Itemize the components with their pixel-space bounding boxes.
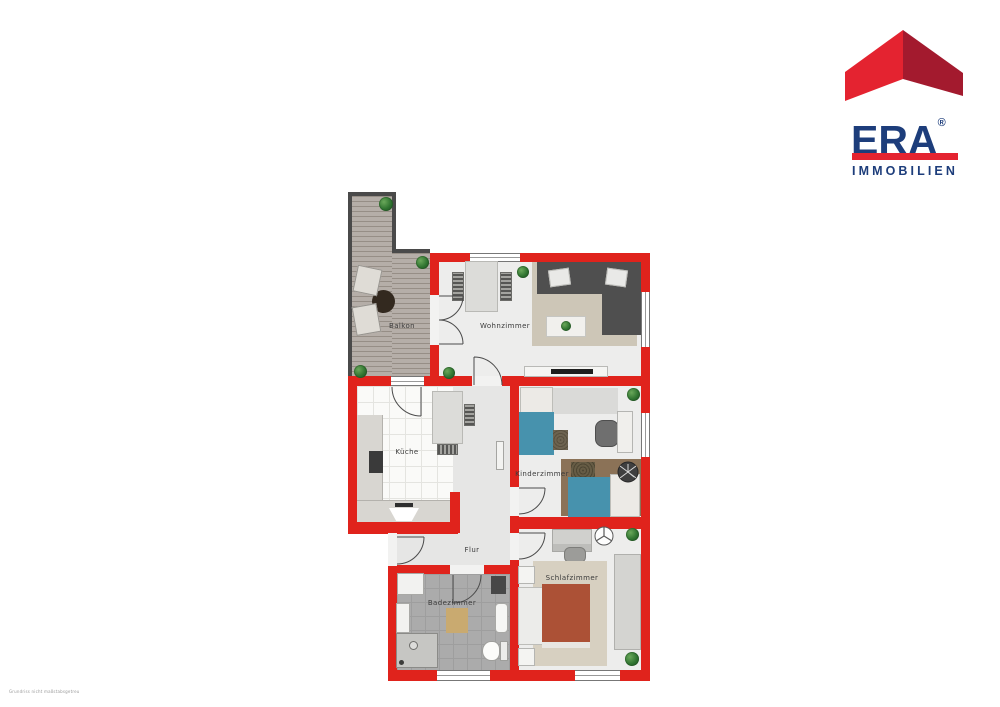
window-bedroom-bottom [575,670,620,681]
room-label-wohnzimmer: Wohnzimmer [480,322,530,330]
room-label-balkon: Balkon [389,322,415,330]
window-kidsroom-right [641,413,650,457]
plant-icon [354,365,367,378]
room-label-schlafzimmer: Schlafzimmer [546,574,599,582]
dining-table [465,261,498,312]
door-opening-entry [388,533,397,566]
window-livingroom-right [641,292,650,347]
era-logo: ERA® IMMOBILIEN [845,30,963,180]
wall [430,253,439,295]
balcony-deck-lower [392,253,430,376]
bath-mat [446,608,468,633]
wall [430,345,439,386]
bathroom-sink [397,573,424,595]
plant-icon [627,388,640,401]
tv [551,369,593,374]
plant-icon [517,266,529,278]
door-opening-balcony-livingroom [430,295,439,345]
balcony-wall-top [348,192,396,196]
logo-subtitle: IMMOBILIEN [852,164,958,178]
wall [348,376,357,534]
era-roof-icon [845,30,963,102]
room-label-badezimmer: Badezimmer [428,599,476,607]
plant-icon [626,528,639,541]
wall [620,670,650,681]
wall [502,376,650,386]
vanity-unit [491,576,506,594]
kids-bed-pillow [520,387,553,414]
toilet-bowl [482,641,500,661]
balcony-wall-step [392,249,430,253]
door-opening-kitchen-balcony [391,376,424,386]
plant-icon [416,256,429,269]
room-label-flur: Flur [465,546,480,554]
kids-bed-blanket [519,412,554,455]
dining-chair [500,272,512,301]
balcony-wall-left [348,192,352,376]
room-label-kinderzimmer: Kinderzimmer [515,470,569,478]
radiator [496,441,504,470]
bed-sheet-fold [542,642,590,648]
sofa [602,294,641,335]
floorplan-page: ERA® IMMOBILIEN [0,0,1000,707]
wall [484,565,510,574]
logo-red-bar [852,153,958,160]
wall [520,253,650,262]
nightstand [518,566,535,584]
balcony-chair [352,303,382,336]
wall [641,253,650,292]
door-opening-kidsroom [510,487,519,516]
wall [641,457,650,681]
wall [490,670,575,681]
toilet-tank [500,641,508,661]
wall [388,670,437,681]
wall [450,492,460,533]
kids-bed2-pillow [610,474,640,517]
window-bathroom-bottom [437,670,490,681]
kids-desk [617,411,633,453]
watermark-text: Grundriss nicht maßstabsgetreu [9,689,79,694]
door-opening-livingroom-hall [472,376,502,386]
desk-chair [595,420,619,447]
registered-mark-icon: ® [938,117,946,129]
door-opening-bathroom [450,565,484,574]
kitchen-chair [437,444,458,455]
kids-bed2-blanket [568,477,611,517]
wardrobe [614,554,641,650]
stove [369,451,383,473]
room-label-kueche: Küche [395,448,418,456]
dining-chair [452,272,464,301]
wall [510,517,650,529]
plant-icon [561,321,571,331]
double-bed-pillows [518,587,543,645]
towel-radiator [495,603,508,633]
plant-icon [625,652,639,666]
bathroom-shelf [396,603,410,633]
shower-drain [409,641,418,650]
kitchen-table [432,391,463,444]
sofa-cushion [548,268,571,288]
nightstand [518,648,535,666]
plant-icon [379,197,393,211]
shower-head [399,660,404,665]
sofa-cushion [605,268,628,288]
kitchen-faucet [395,503,413,507]
wall [348,522,458,534]
kitchen-chair [464,404,475,426]
double-bed-blanket [542,584,590,648]
kidsroom-mat [551,388,618,414]
plant-icon [443,367,455,379]
door-opening-bedroom [510,533,519,560]
small-dark-rug [553,430,568,450]
